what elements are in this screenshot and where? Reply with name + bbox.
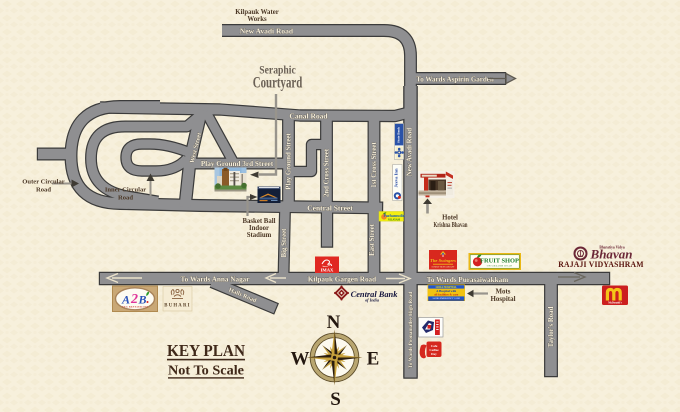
svg-text:24 HRS EMERGENCY CARE: 24 HRS EMERGENCY CARE (432, 297, 460, 300)
svg-text:The Swingers: The Swingers (430, 258, 456, 263)
svg-text:Basket Ball: Basket Ball (242, 218, 275, 225)
svg-text:FAMILY RESTAURANT: FAMILY RESTAURANT (432, 266, 455, 269)
svg-text:Krishna Bhavan: Krishna Bhavan (434, 222, 468, 229)
svg-text:ON GREAMS ROAD: ON GREAMS ROAD (487, 265, 513, 268)
svg-text:N: N (327, 312, 341, 333)
svg-text:Works: Works (247, 16, 267, 23)
svg-text:Outer Circular: Outer Circular (22, 178, 64, 185)
svg-text:VEG RESTAURANT: VEG RESTAURANT (122, 306, 148, 309)
svg-text:A: A (121, 293, 130, 307)
svg-text:Kilpauk Gargen Road: Kilpauk Gargen Road (308, 276, 376, 284)
svg-text:McDonald's: McDonald's (608, 302, 621, 305)
svg-text:To Wards Aspirin Garden: To Wards Aspirin Garden (416, 75, 494, 83)
svg-text:State Bank: State Bank (397, 127, 401, 143)
svg-text:Taylor's Road: Taylor's Road (548, 306, 555, 347)
svg-text:Day: Day (431, 352, 437, 356)
svg-text:Not To Scale: Not To Scale (168, 362, 244, 377)
svg-text:of India: of India (365, 298, 379, 303)
svg-text:Pazhamudir: Pazhamudir (383, 213, 404, 218)
svg-text:IMAX: IMAX (321, 267, 334, 272)
svg-text:Play Ground 3rd Street: Play Ground 3rd Street (201, 160, 274, 168)
svg-text:Indoor: Indoor (249, 225, 269, 232)
svg-text:Play Ground Street: Play Ground Street (286, 133, 293, 190)
svg-text:To Wards Anna Nagar: To Wards Anna Nagar (181, 276, 251, 284)
svg-text:Canal Road: Canal Road (289, 111, 328, 120)
svg-text:KEY PLAN: KEY PLAN (167, 341, 246, 360)
svg-text:To Wards Poonamallee High Road: To Wards Poonamallee High Road (408, 292, 414, 368)
svg-text:Road: Road (36, 186, 51, 193)
svg-text:Courtyard: Courtyard (253, 75, 303, 92)
svg-text:Bhavan: Bhavan (589, 247, 632, 262)
svg-text:Hospital: Hospital (491, 295, 516, 303)
svg-text:Hotel: Hotel (442, 214, 458, 221)
svg-text:W: W (291, 349, 310, 370)
svg-text:Road: Road (118, 194, 133, 201)
svg-text:Central Street: Central Street (307, 204, 353, 213)
svg-text:1st Cross Street: 1st Cross Street (371, 142, 378, 188)
svg-text:New Avadi Road: New Avadi Road (240, 26, 294, 35)
svg-text:E: E (367, 349, 380, 370)
svg-text:S: S (330, 389, 341, 410)
svg-text:all facilities & care: all facilities & care (434, 292, 459, 296)
svg-text:To Wards Purasaiwakkam: To Wards Purasaiwakkam (427, 276, 508, 284)
svg-text:Kilpauk Water: Kilpauk Water (235, 9, 279, 16)
svg-text:Jeeva Inn: Jeeva Inn (394, 168, 399, 187)
svg-text:B: B (137, 293, 146, 307)
svg-text:East Street: East Street (369, 223, 376, 256)
svg-text:BUHARI: BUHARI (164, 304, 190, 309)
svg-text:NILAYAM: NILAYAM (388, 219, 401, 222)
svg-text:2nd Cross Street: 2nd Cross Street (324, 148, 331, 197)
svg-text:New Avadi Road: New Avadi Road (406, 128, 413, 176)
svg-text:Big Street: Big Street (281, 228, 288, 257)
svg-text:Inner Circular: Inner Circular (105, 186, 146, 193)
svg-text:Stadium: Stadium (247, 232, 272, 239)
